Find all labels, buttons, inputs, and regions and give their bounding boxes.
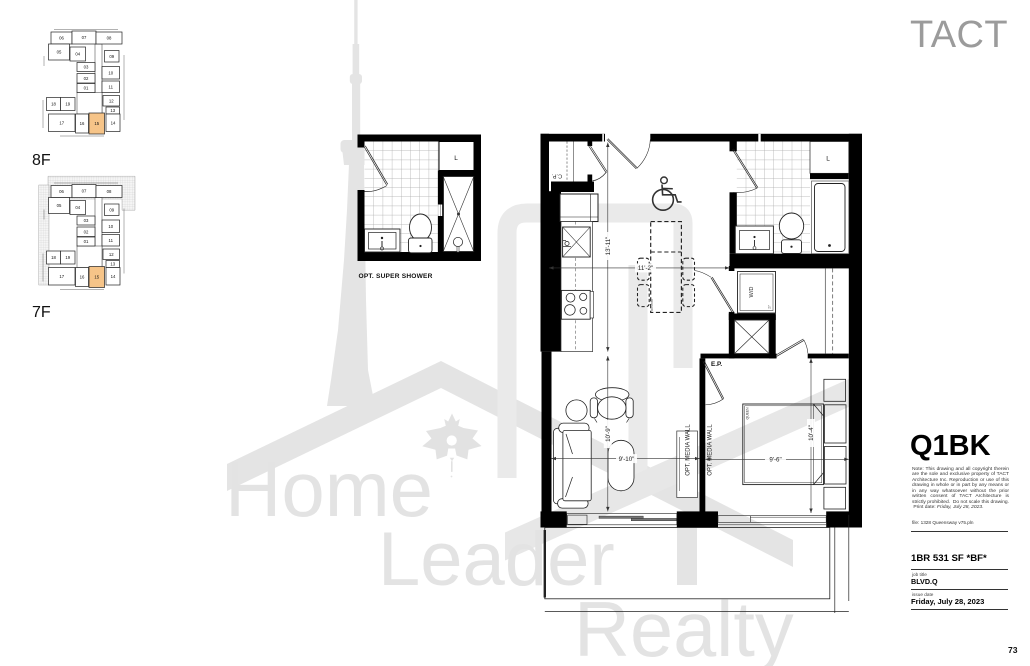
- svg-text:QUEEN: QUEEN: [746, 407, 750, 420]
- svg-text:11: 11: [109, 84, 114, 89]
- svg-text:10'-4": 10'-4": [808, 425, 815, 441]
- svg-text:15: 15: [94, 275, 99, 280]
- svg-text:18: 18: [51, 102, 56, 107]
- svg-text:W/D: W/D: [749, 287, 755, 298]
- svg-text:03: 03: [84, 65, 89, 70]
- svg-text:08: 08: [107, 189, 112, 194]
- svg-text:14: 14: [111, 274, 116, 279]
- svg-text:11'-2": 11'-2": [638, 265, 653, 272]
- svg-text:11: 11: [109, 238, 114, 243]
- svg-text:03: 03: [84, 218, 89, 223]
- svg-text:05: 05: [57, 50, 62, 55]
- svg-text:OPT. SUPER SHOWER: OPT. SUPER SHOWER: [359, 273, 433, 280]
- svg-text:07: 07: [82, 189, 87, 194]
- svg-text:06: 06: [59, 36, 64, 41]
- svg-text:05: 05: [57, 203, 62, 208]
- svg-text:09: 09: [109, 207, 114, 212]
- svg-text:OPT. MEDIA WALL: OPT. MEDIA WALL: [708, 424, 714, 476]
- svg-text:L: L: [454, 155, 458, 162]
- svg-text:9'-10": 9'-10": [619, 456, 635, 463]
- svg-text:10: 10: [108, 224, 113, 229]
- svg-text:18: 18: [51, 255, 56, 260]
- svg-text:06: 06: [59, 189, 64, 194]
- svg-text:E.P.: E.P.: [711, 361, 722, 368]
- svg-text:12: 12: [109, 252, 114, 257]
- svg-text:19: 19: [65, 255, 70, 260]
- svg-text:02: 02: [84, 76, 89, 81]
- svg-text:27: 27: [768, 305, 772, 309]
- svg-text:13: 13: [110, 108, 115, 113]
- svg-text:04: 04: [75, 205, 80, 210]
- svg-text:16: 16: [80, 275, 85, 280]
- svg-text:13'-11": 13'-11": [605, 237, 612, 256]
- svg-text:17: 17: [59, 274, 64, 279]
- svg-text:17: 17: [59, 120, 64, 125]
- svg-text:16: 16: [80, 121, 85, 126]
- svg-text:12: 12: [109, 98, 114, 103]
- svg-text:09: 09: [109, 54, 114, 59]
- svg-text:9'-6": 9'-6": [769, 457, 781, 464]
- svg-text:02: 02: [84, 229, 89, 234]
- svg-text:01: 01: [84, 239, 89, 244]
- svg-text:L: L: [826, 156, 830, 163]
- svg-text:07: 07: [82, 35, 87, 40]
- svg-text:19: 19: [65, 102, 70, 107]
- svg-text:RD.2650: RD.2650: [650, 299, 654, 311]
- svg-text:10'-9": 10'-9": [605, 426, 612, 442]
- svg-text:04: 04: [75, 52, 80, 57]
- svg-text:8F: 8F: [32, 152, 51, 169]
- svg-text:10: 10: [108, 70, 113, 75]
- svg-text:15: 15: [94, 121, 99, 126]
- svg-text:7F: 7F: [32, 304, 51, 321]
- svg-text:13: 13: [110, 262, 115, 267]
- svg-text:14: 14: [111, 120, 116, 125]
- svg-text:01: 01: [84, 86, 89, 91]
- svg-text:C.P.: C.P.: [551, 173, 562, 179]
- svg-text:OPT. MEDIA WALL: OPT. MEDIA WALL: [686, 424, 692, 476]
- svg-text:08: 08: [107, 36, 112, 41]
